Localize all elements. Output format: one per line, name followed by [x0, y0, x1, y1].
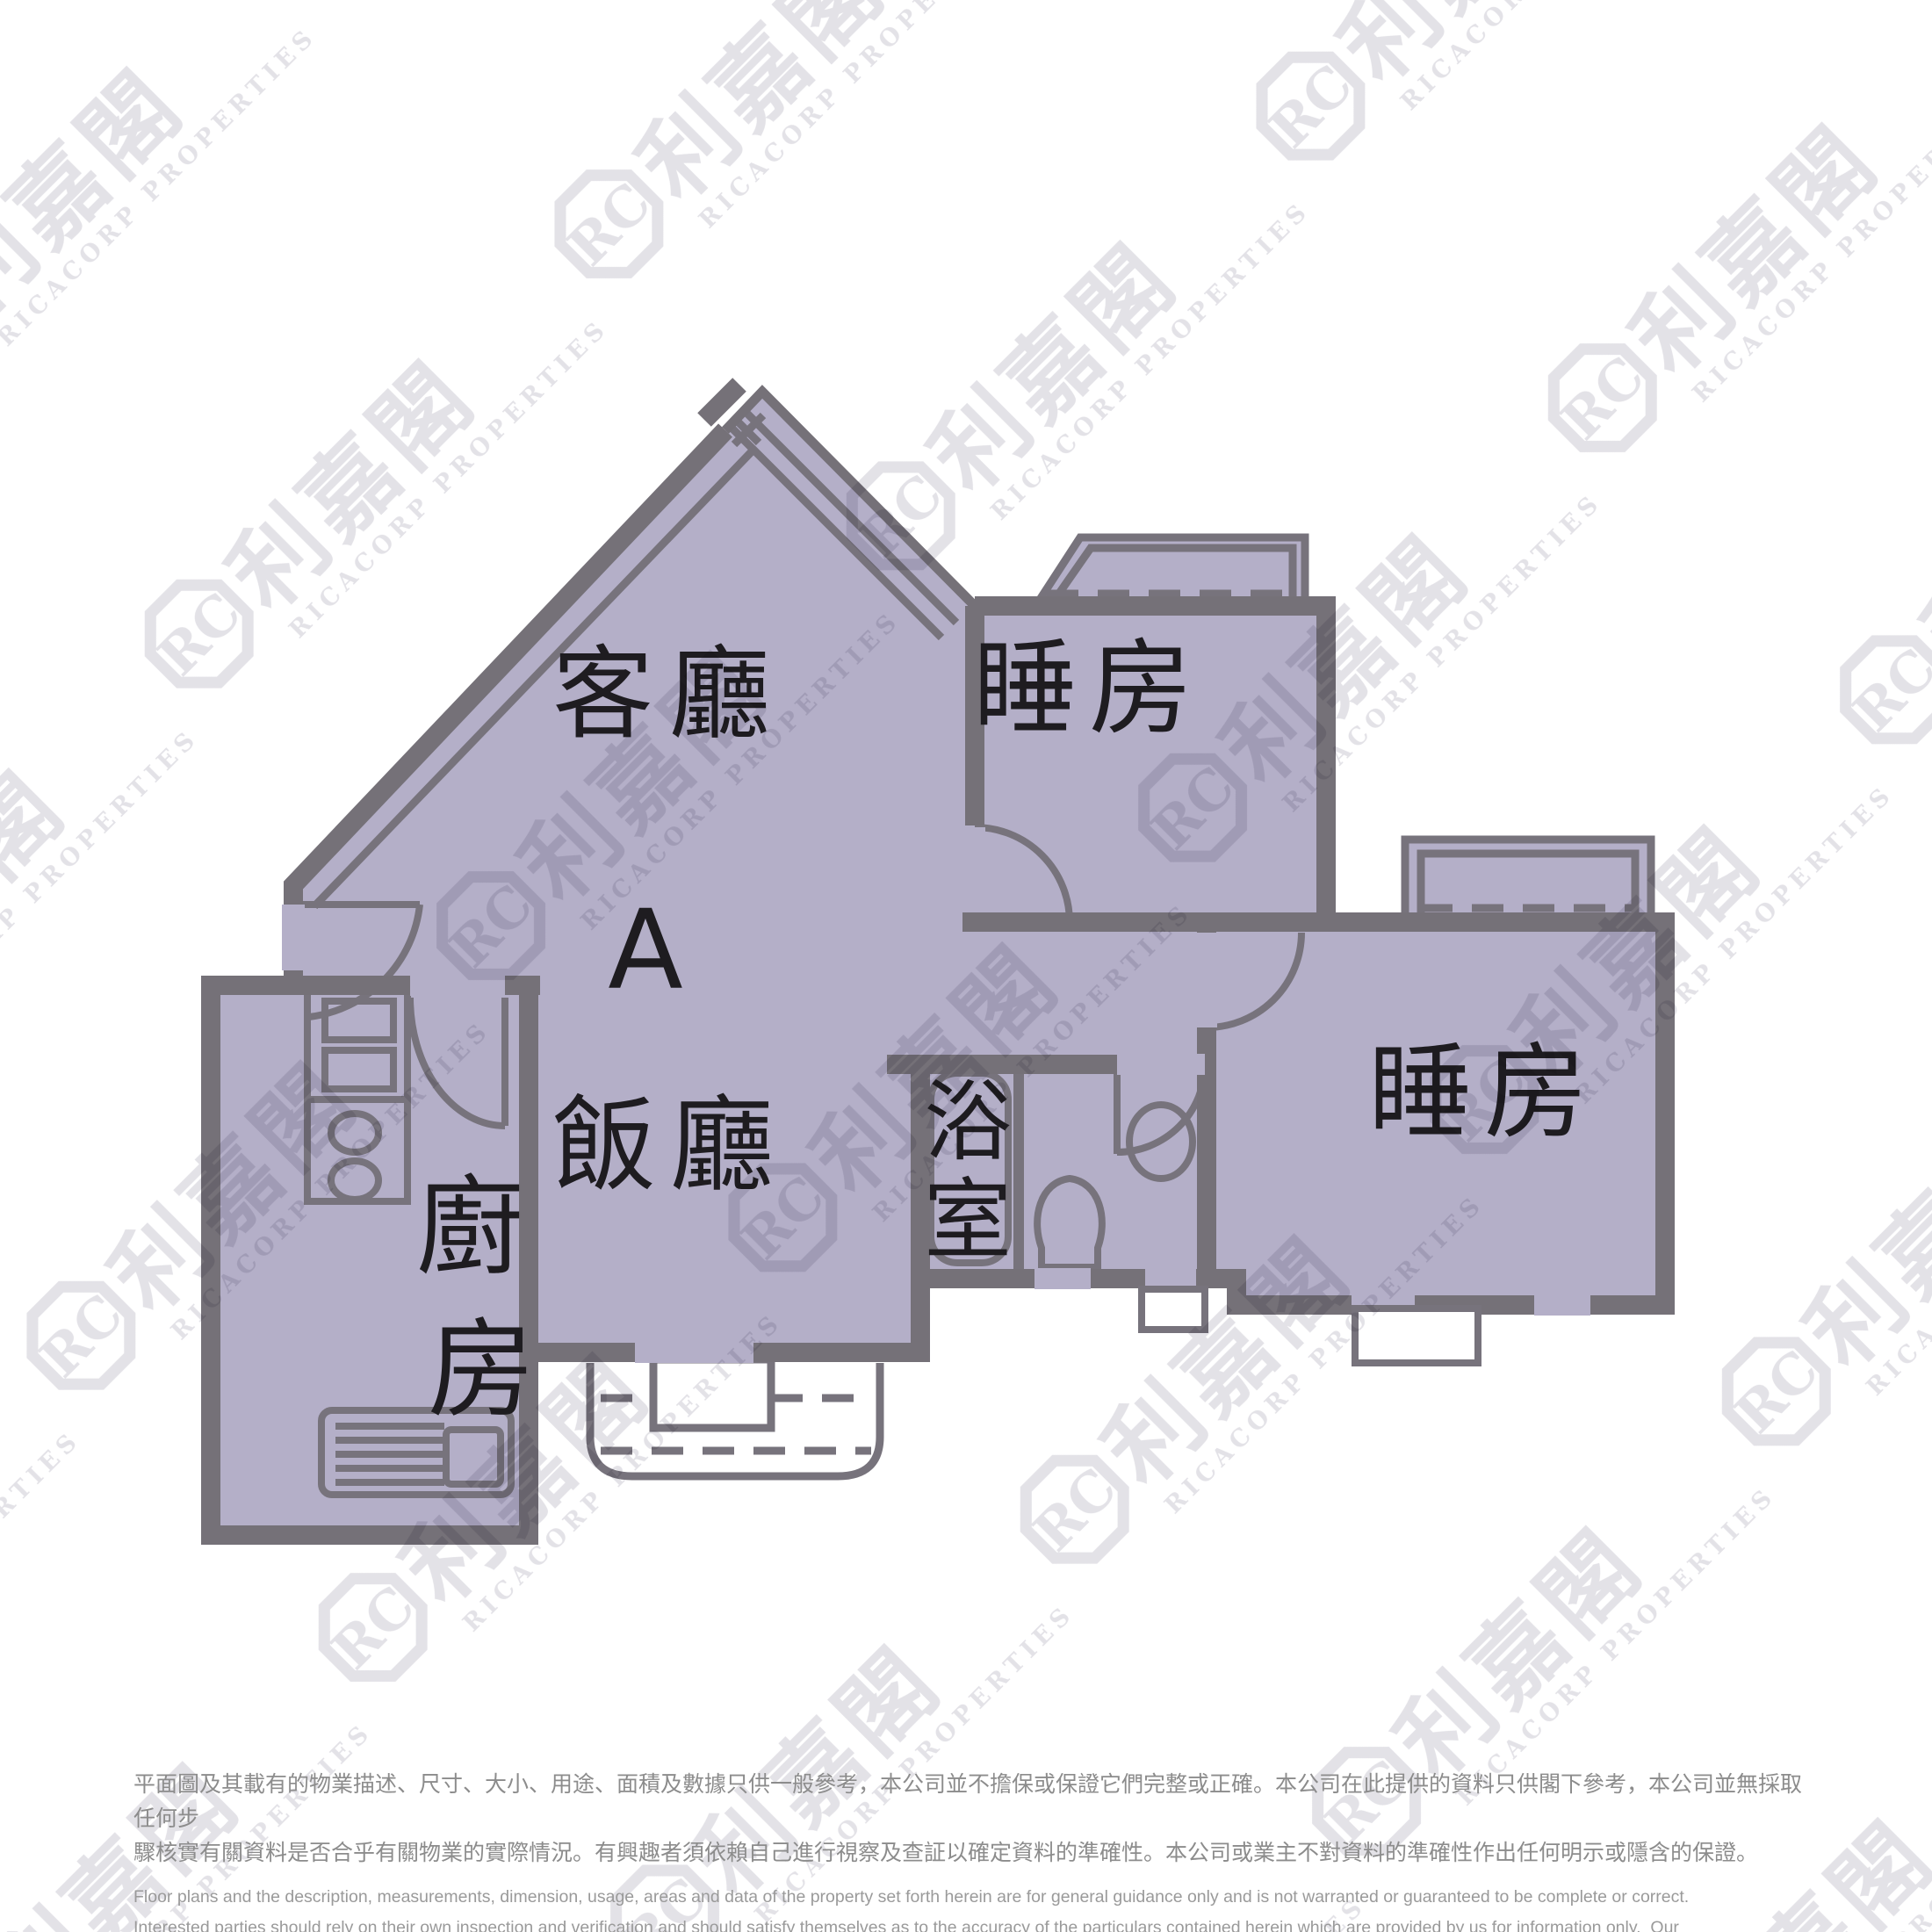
floor-plan-page: 客廳 A 飯廳 睡房 睡房 廚 房 浴 室 RC 利嘉閣 RICACORP PR… — [0, 0, 1932, 1932]
disclaimer-zh-line-1: 平面圖及其載有的物業描述、尺寸、大小、用途、面積及數據只供一般參考，本公司並不擔… — [133, 1767, 1802, 1835]
disclaimer-zh-line-2: 驟核實有關資料是否合乎有關物業的實際情況。有興趣者須依賴自己進行視察及查証以確定… — [133, 1835, 1802, 1870]
disclaimer-en-line-2: Interested parties should rely on their … — [133, 1913, 1802, 1932]
disclaimer: 平面圖及其載有的物業描述、尺寸、大小、用途、面積及數據只供一般參考，本公司並不擔… — [133, 1767, 1802, 1932]
watermark-layer — [0, 0, 1932, 1932]
floor-plan-canvas: 客廳 A 飯廳 睡房 睡房 廚 房 浴 室 RC 利嘉閣 RICACORP PR… — [0, 0, 1932, 1932]
disclaimer-en-line-1: Floor plans and the description, measure… — [133, 1882, 1802, 1913]
disclaimer-english-block: Floor plans and the description, measure… — [133, 1882, 1802, 1932]
